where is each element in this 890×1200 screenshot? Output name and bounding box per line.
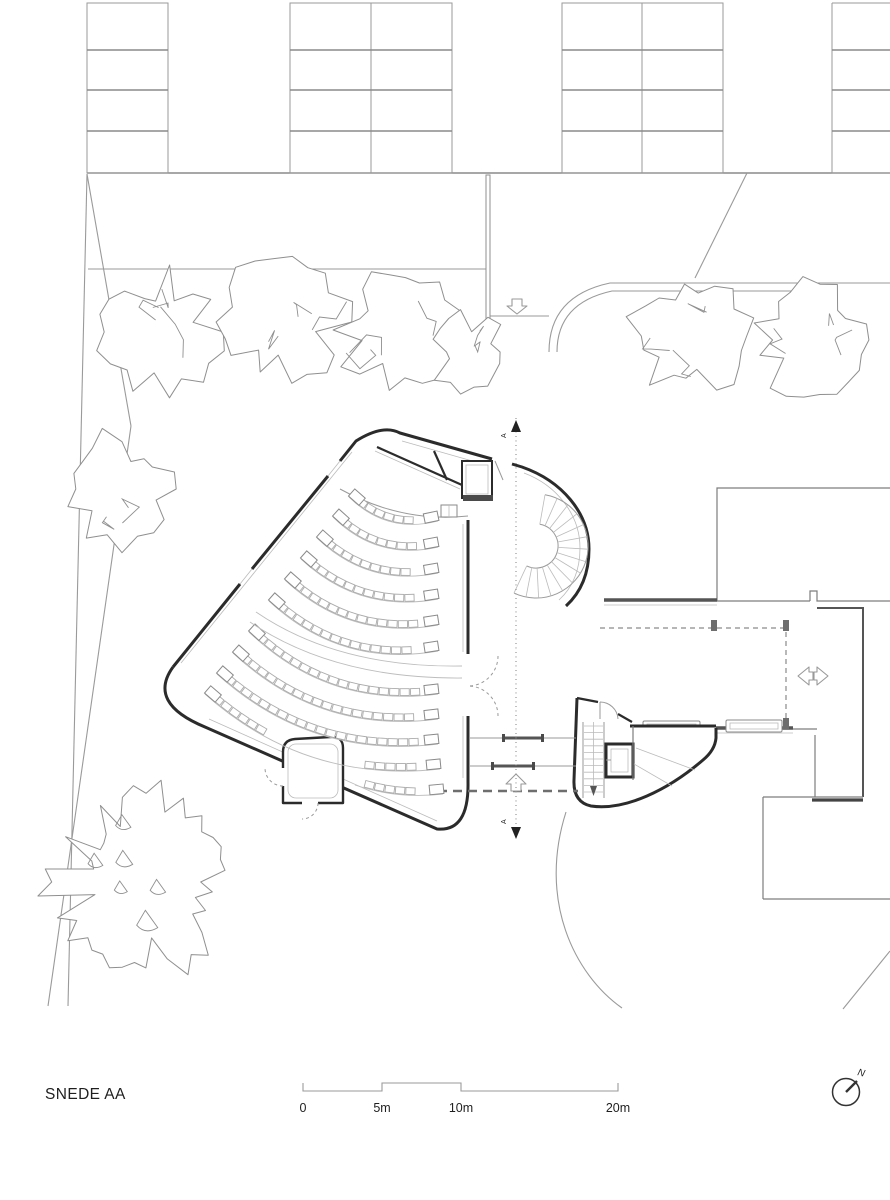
seat <box>374 591 384 599</box>
door-swing-arc <box>468 686 498 716</box>
seat <box>352 709 362 717</box>
seat <box>362 711 372 719</box>
seat <box>367 737 377 745</box>
direction-arrow-right-icon <box>814 667 828 685</box>
seat <box>394 594 403 601</box>
column <box>711 620 717 631</box>
north-arrow: N <box>833 1067 867 1105</box>
column <box>783 620 789 631</box>
seat <box>369 686 379 694</box>
seat <box>397 542 407 549</box>
seat <box>378 738 388 745</box>
seat <box>392 647 401 654</box>
seat <box>396 763 405 770</box>
row-end-plate <box>424 709 439 720</box>
seat <box>390 568 400 576</box>
seat <box>409 738 419 745</box>
seat <box>388 620 398 627</box>
seat <box>367 617 377 625</box>
north-label: N <box>856 1067 866 1080</box>
seat <box>399 739 408 746</box>
row-end-plate <box>426 759 441 770</box>
grid-block-2 <box>290 3 452 173</box>
row-end-plate <box>424 684 439 695</box>
context-building-grids <box>87 3 890 173</box>
seat <box>360 643 370 651</box>
scale-tick-5m: 5m <box>373 1101 390 1115</box>
grid-block-3 <box>562 3 723 173</box>
tree-canopy <box>68 428 176 552</box>
tree-canopy <box>626 284 754 390</box>
seat <box>402 647 411 654</box>
annex-wing <box>574 698 716 807</box>
drawing-title: SNEDE AA <box>45 1086 126 1103</box>
seat <box>395 787 405 795</box>
seat <box>404 517 413 524</box>
row-end-plate <box>424 734 439 745</box>
seat <box>346 734 356 742</box>
scale-tick-20m: 20m <box>606 1101 630 1115</box>
seat <box>393 515 403 523</box>
seat <box>374 783 384 791</box>
seat <box>357 736 367 744</box>
seat <box>390 688 399 695</box>
seat <box>407 763 416 770</box>
seat <box>407 543 416 550</box>
seat <box>408 620 418 627</box>
seat <box>387 540 397 548</box>
tree-canopy <box>97 265 225 398</box>
direction-arrow-left-icon <box>798 667 813 685</box>
section-marker-bottom: A <box>501 819 508 824</box>
seat <box>400 689 409 696</box>
gate-arrow-down-icon <box>507 299 527 314</box>
covered-walkway <box>600 600 828 733</box>
tree-canopy <box>216 256 353 383</box>
row-end-plate <box>423 537 439 549</box>
bush-canopy <box>38 780 225 974</box>
seat <box>379 688 389 696</box>
scale-bar: 0 5m 10m 20m <box>300 1083 631 1115</box>
seat <box>384 593 394 601</box>
section-arrow-bottom-icon <box>511 827 521 839</box>
seat <box>385 785 395 793</box>
seat <box>365 761 375 769</box>
seat <box>381 646 391 653</box>
seat <box>386 763 395 770</box>
seat <box>383 713 393 720</box>
section-arrow-top-icon <box>511 420 521 432</box>
row-end-plate <box>424 563 439 575</box>
seat <box>342 707 352 716</box>
seat <box>336 731 346 740</box>
scale-tick-10m: 10m <box>449 1101 473 1115</box>
row-end-plate <box>429 784 444 795</box>
seat <box>404 714 413 721</box>
bench <box>726 720 782 732</box>
seat <box>398 621 407 628</box>
section-marker-top: A <box>501 433 508 438</box>
seat <box>373 712 383 720</box>
seat <box>405 594 414 601</box>
elevator <box>606 744 633 777</box>
seat <box>380 566 390 574</box>
site-plan-svg: A A SNEDE AA 0 5m 10m 20m N <box>0 0 890 1200</box>
seat <box>375 762 385 769</box>
seat <box>358 684 368 692</box>
projection-booth <box>462 461 493 501</box>
lectern <box>441 505 457 517</box>
door-swing-arc <box>468 656 498 686</box>
seat <box>371 645 381 653</box>
seat <box>401 569 410 576</box>
scale-tick-0: 0 <box>300 1101 307 1115</box>
tree-canopy <box>754 277 869 398</box>
seat <box>394 714 403 721</box>
existing-building <box>717 488 890 899</box>
seat <box>348 682 359 691</box>
architectural-site-plan: A A SNEDE AA 0 5m 10m 20m N <box>0 0 890 1200</box>
seat <box>410 688 420 695</box>
column <box>783 718 789 729</box>
seat <box>406 788 415 795</box>
grid-block-4 <box>832 3 890 173</box>
row-end-plate <box>424 641 439 653</box>
row-end-plate <box>424 589 439 601</box>
grid-block-1 <box>87 3 168 173</box>
seat <box>377 619 387 627</box>
seat <box>388 739 397 746</box>
row-end-plate <box>424 615 439 627</box>
